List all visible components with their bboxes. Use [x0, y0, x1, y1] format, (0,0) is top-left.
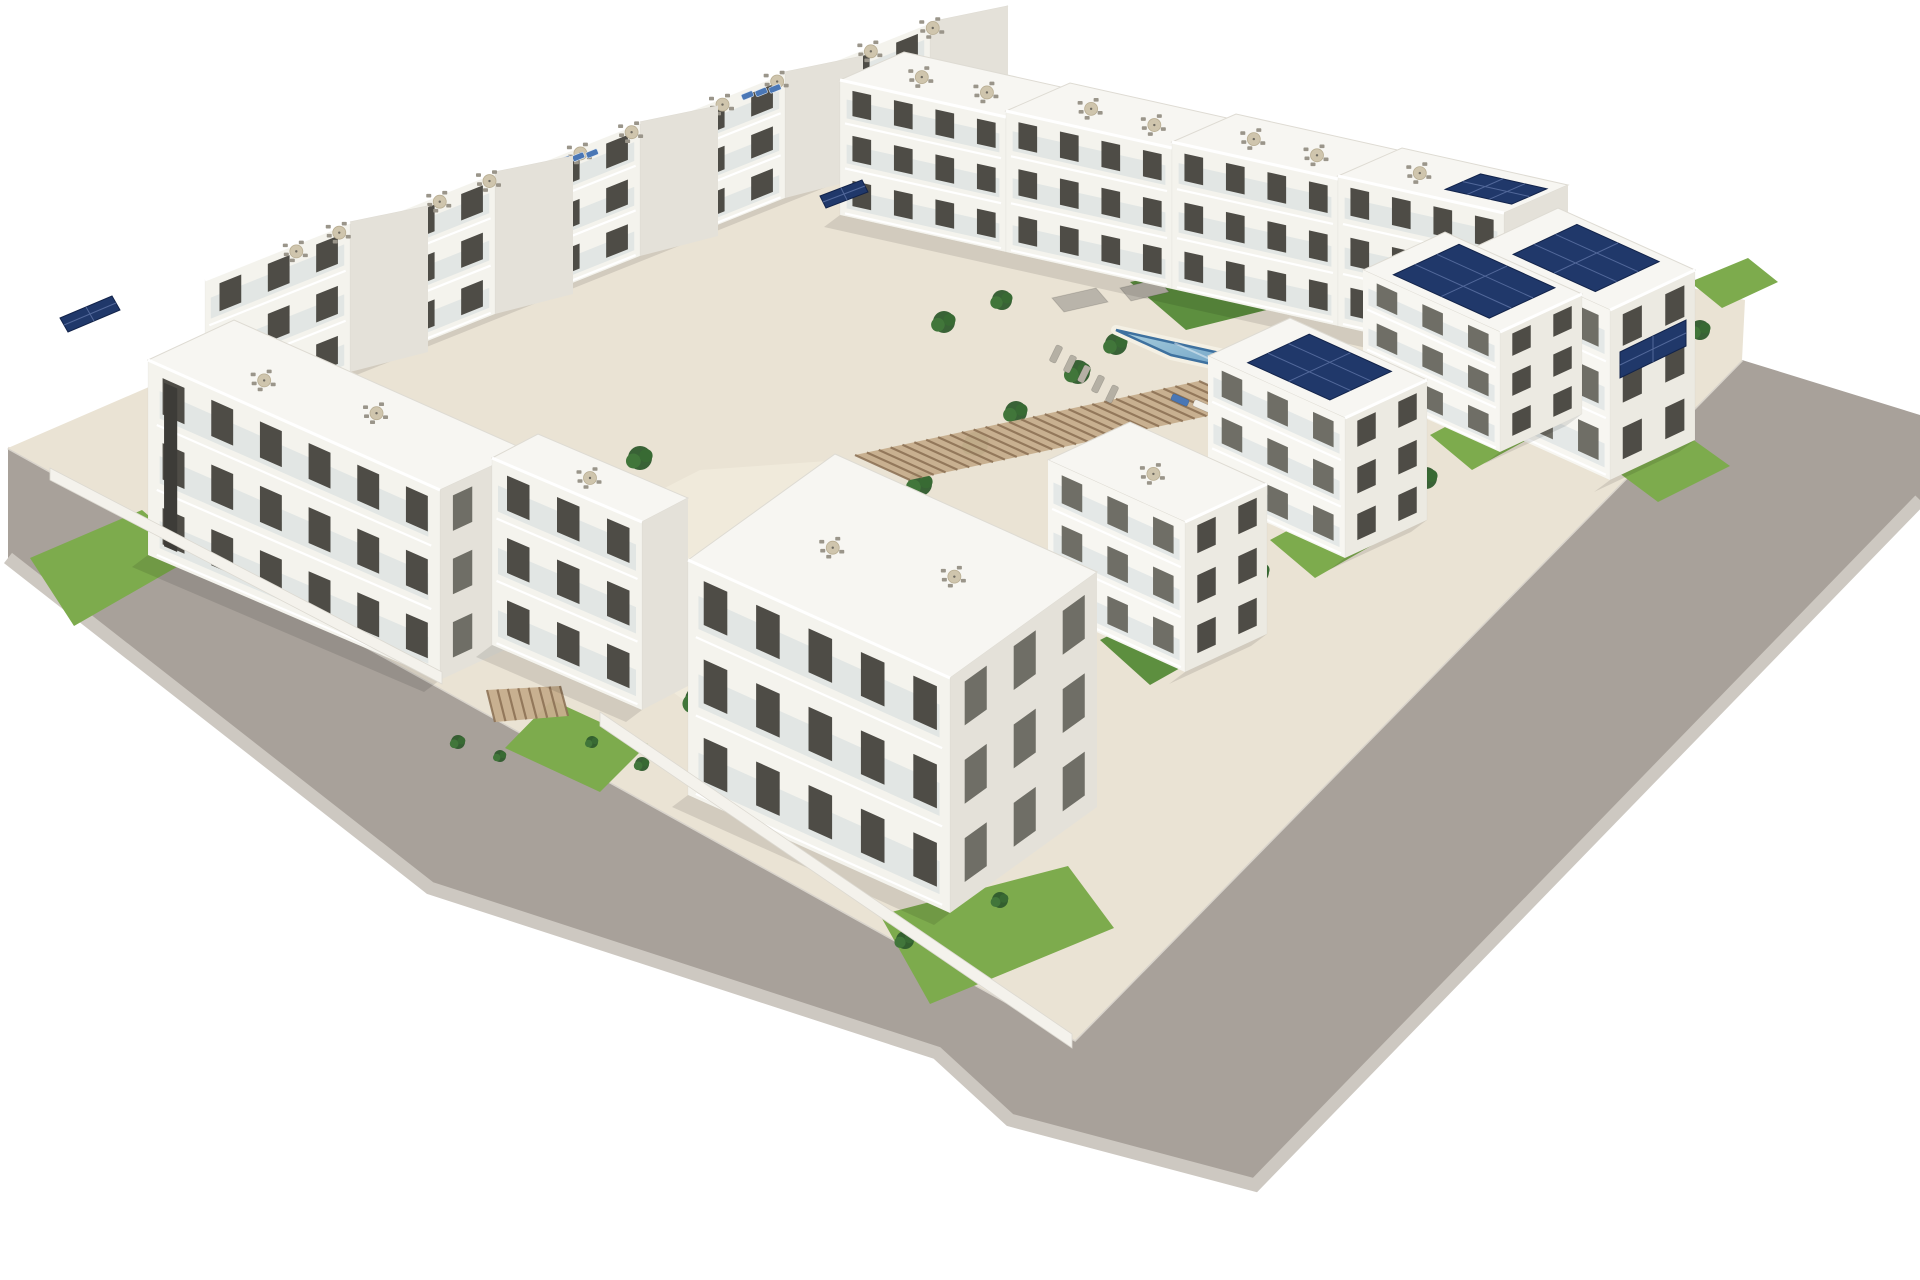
building-side-back-left-3 [640, 106, 718, 256]
window [894, 100, 913, 129]
window [894, 190, 913, 219]
window [977, 119, 996, 148]
window [1267, 221, 1286, 253]
aerial-render-svg [0, 0, 1920, 1280]
window [1350, 188, 1369, 220]
window [1143, 244, 1162, 274]
building-side-back-left-1 [350, 206, 428, 372]
window [1101, 188, 1120, 218]
window [1267, 270, 1286, 302]
window [1350, 238, 1369, 270]
window [1101, 141, 1120, 171]
window [1226, 212, 1245, 244]
building-side-back-left-2 [495, 156, 573, 314]
window [852, 136, 871, 165]
window [1184, 154, 1203, 186]
window [1226, 261, 1245, 293]
window [935, 154, 954, 183]
window [977, 164, 996, 193]
window [1143, 197, 1162, 227]
window [977, 209, 996, 238]
window [1267, 172, 1286, 204]
window [1018, 216, 1037, 246]
window [1060, 225, 1079, 255]
window [852, 91, 871, 120]
window [1060, 178, 1079, 208]
window [1101, 235, 1120, 265]
window [1018, 169, 1037, 199]
window [1060, 131, 1079, 161]
render-stage: Aerial 3D render of white apartment comp… [0, 0, 1920, 1280]
window [1309, 181, 1328, 213]
scene-layers [0, 0, 1920, 1280]
window [935, 199, 954, 228]
window [1392, 197, 1411, 229]
window [1184, 252, 1203, 284]
window [1143, 150, 1162, 180]
window [1309, 279, 1328, 311]
window [894, 145, 913, 174]
stair-slot [164, 383, 177, 552]
window [1309, 230, 1328, 262]
window [1018, 122, 1037, 152]
window [935, 109, 954, 138]
window [1184, 203, 1203, 235]
building-side-mid-front-building [642, 498, 688, 710]
window [1226, 163, 1245, 195]
